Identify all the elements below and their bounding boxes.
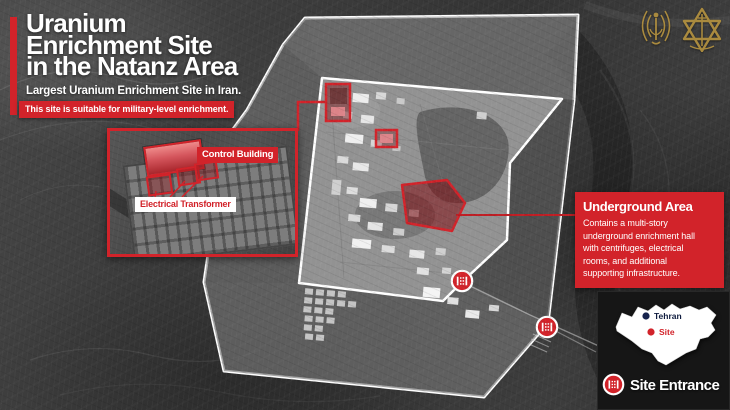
callout-body-line: with centrifuges, electrical (583, 242, 716, 255)
site-dot (647, 328, 654, 335)
entrance-marker-south (537, 317, 557, 337)
substation-inset: Control Building Electrical Transformer (107, 128, 298, 257)
banner-note: This site is suitable for military-level… (19, 101, 234, 118)
subtitle: Largest Uranium Enrichment Site in Iran. (26, 85, 241, 97)
control-building-label: Control Building (197, 147, 278, 163)
secondary-highlight-box (376, 130, 397, 147)
tehran-dot (642, 312, 649, 319)
control-building-highlight-box (326, 84, 350, 121)
site-label: Site (659, 327, 675, 337)
callout-body-line: Contains a multi-story (583, 217, 716, 230)
title-line-3: in the Natanz Area (26, 56, 326, 78)
callout-title: Underground Area (583, 199, 716, 214)
title-accent-bar (10, 17, 17, 115)
locator-legend-panel: Tehran Site Site Entrance (597, 291, 730, 410)
tehran-label: Tehran (654, 311, 682, 321)
site-entrance-label: Site Entrance (630, 377, 719, 394)
underground-area-callout: Underground Area Contains a multi-story … (575, 192, 724, 288)
page-title: Uranium Enrichment Site in the Natanz Ar… (26, 13, 326, 78)
infographic: Uranium Enrichment Site in the Natanz Ar… (0, 0, 730, 410)
site-entrance-icon (602, 373, 625, 396)
callout-body-line: supporting infrastructure. (583, 267, 716, 280)
callout-body-line: rooms, and additional (583, 255, 716, 268)
idf-emblem-icon (680, 6, 724, 52)
entrance-marker-north (452, 271, 472, 291)
emblems (639, 6, 724, 52)
callout-body-line: underground enrichment hall (583, 230, 716, 243)
electrical-transformer-label: Electrical Transformer (135, 197, 236, 212)
intelligence-corps-emblem-icon (639, 6, 673, 46)
